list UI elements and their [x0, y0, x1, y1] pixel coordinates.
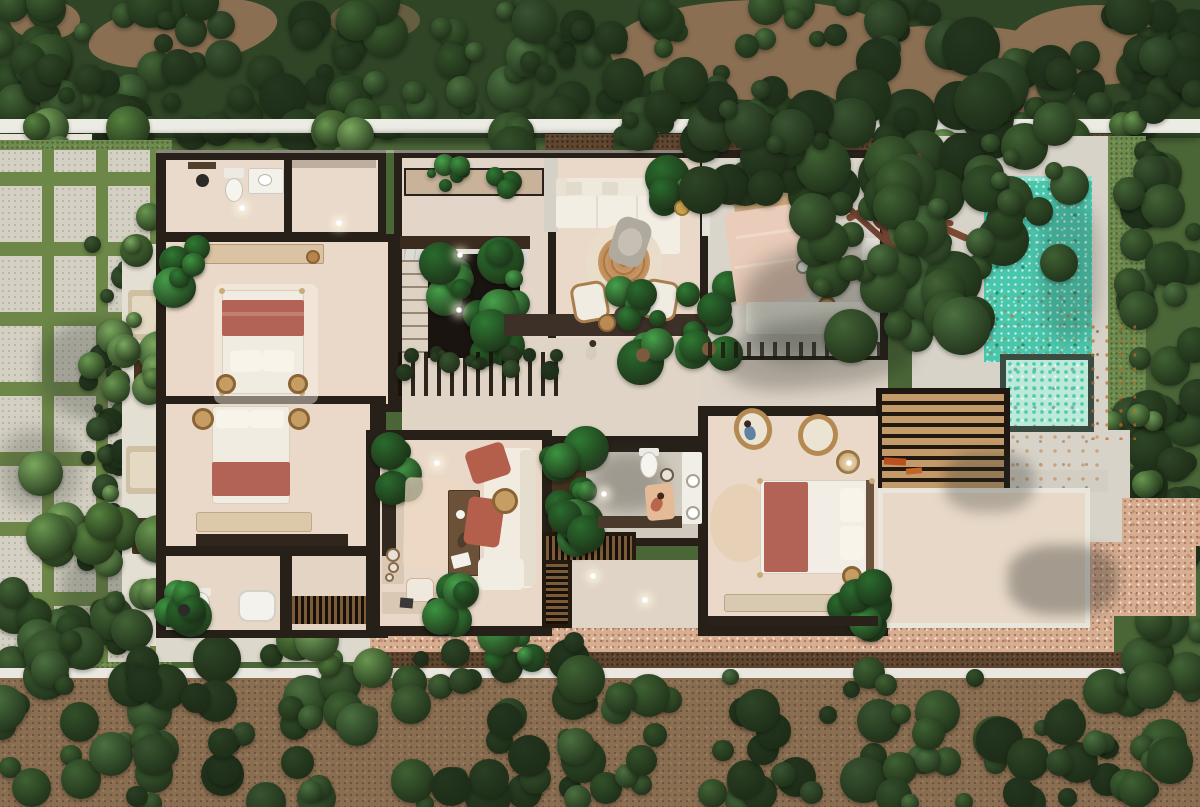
tree-canopy-blob [1025, 197, 1053, 225]
tree-canopy-blob [1033, 102, 1076, 145]
headboard-edge [866, 480, 874, 574]
top-canopy-blob [748, 0, 783, 25]
path-shrub [470, 632, 540, 668]
hedge-blob [86, 417, 110, 441]
sunken-garden-plants-blob [505, 270, 523, 288]
bed-knob [757, 478, 763, 484]
tree-canopy-blob [997, 189, 1023, 215]
bottom-canopy-blob [126, 786, 148, 807]
bottom-canopy-blob [605, 682, 637, 714]
tree-canopy-blob [966, 228, 995, 257]
gravel-patch [1122, 498, 1200, 546]
aerial-villa-render [0, 0, 1200, 807]
bottom-canopy-blob [722, 669, 739, 686]
bottom-canopy-blob [193, 635, 241, 683]
top-canopy-blob [512, 0, 558, 44]
courtyard-plants [544, 444, 592, 540]
top-canopy-blob [571, 20, 590, 39]
stone-basin [660, 468, 674, 482]
pillow [229, 349, 262, 373]
east-canopy-blob [1145, 242, 1189, 286]
rattan-disc [192, 408, 214, 430]
bottom-canopy-blob [736, 689, 779, 732]
tree-canopy-blob [1040, 244, 1078, 282]
bottom-canopy-blob [336, 703, 379, 746]
tree-canopy-blob [991, 172, 1008, 189]
louver-plants-blob [550, 349, 564, 363]
bottom-canopy-blob [1058, 788, 1077, 807]
wall-plate [388, 562, 399, 573]
bottom-canopy-blob [626, 745, 657, 776]
wicker-hat [492, 488, 518, 514]
bottom-canopy-blob [912, 717, 945, 750]
rattan-pouf [216, 374, 236, 394]
garden-palm-blob [18, 451, 63, 496]
bottom-canopy-blob [1083, 730, 1108, 755]
big-tree-canopy-blob [884, 311, 912, 339]
lamp-glow [845, 459, 853, 467]
bottom-canopy-blob [800, 781, 823, 804]
path-shrub-blob [517, 647, 534, 664]
bottom-canopy-blob [955, 793, 973, 807]
hedge-blob [81, 451, 95, 465]
louver-plants [398, 348, 564, 374]
louver-plants-blob [541, 361, 559, 379]
tree-canopy-blob [981, 134, 999, 152]
sunken-garden-plants-blob [451, 279, 471, 299]
top-canopy-blob [36, 54, 67, 85]
slat-floor-v [546, 564, 568, 624]
tray [306, 250, 320, 264]
sofa-seam [596, 196, 598, 228]
shelf [188, 162, 216, 169]
sink-bowl [258, 174, 272, 186]
ceiling-spotlight [589, 572, 597, 580]
east-canopy-blob [1141, 184, 1185, 228]
top-canopy-blob [161, 49, 196, 84]
console [196, 534, 348, 546]
ceiling-spotlight [641, 596, 649, 604]
closet-rail [292, 160, 376, 168]
pool-sunshelf [1006, 360, 1088, 426]
garden-palm-blob [124, 236, 142, 254]
planter-plants-blob [439, 179, 452, 192]
ceiling-spotlight [335, 219, 343, 227]
bed1-terracotta-blanket [222, 300, 304, 336]
scene-layer [0, 0, 1200, 807]
potted-plant-tall-blob [626, 279, 657, 310]
bottom-canopy-blob [771, 762, 796, 787]
stool [178, 604, 190, 616]
toilet [225, 178, 243, 202]
bottom-canopy-blob [819, 706, 837, 724]
pillow [840, 526, 864, 560]
garden-spotlight [455, 306, 463, 314]
bottom-canopy-blob [60, 630, 83, 653]
big-tree-canopy-blob [894, 107, 918, 131]
bed-knob [299, 288, 305, 294]
top-canopy-blob [74, 23, 92, 41]
tree-canopy [976, 116, 1072, 266]
sofa-pillow [566, 181, 583, 195]
tree-canopy-blob [1003, 149, 1020, 166]
bottom-canopy-blob [208, 728, 238, 758]
top-canopy-blob [162, 93, 181, 112]
east-canopy-blob [1182, 80, 1200, 105]
top-canopy-blob [205, 40, 242, 77]
top-canopy [340, 0, 530, 130]
plant-pot [636, 348, 650, 362]
coffee-side-table [598, 314, 616, 332]
bed-knob [757, 572, 763, 578]
east-canopy-blob [1113, 177, 1146, 210]
top-canopy-blob [58, 87, 75, 104]
bottom-canopy-blob [469, 759, 508, 798]
big-tree-canopy-blob [838, 255, 864, 281]
sunken-garden-plants-blob [419, 242, 462, 285]
bottom-canopy-blob [1147, 737, 1194, 784]
sink-bowl [686, 474, 700, 488]
garden-palm-blob [115, 337, 139, 361]
sofa-pillow [602, 182, 619, 196]
bottom-canopy-blob [12, 768, 51, 807]
garden-palm-blob [126, 312, 142, 328]
potted-plant [434, 588, 466, 624]
garden-palm-blob [78, 352, 105, 379]
tree-canopy-blob [622, 112, 639, 129]
bottom-canopy-blob [55, 676, 74, 695]
person-body [585, 345, 598, 361]
east-canopy-blob [1138, 93, 1169, 124]
person-body [743, 425, 757, 441]
tree-canopy-blob [1045, 162, 1063, 180]
blanket-fold [222, 312, 304, 316]
wall-cap-highlight [156, 150, 714, 153]
big-tree-canopy-blob [867, 244, 899, 276]
bottom-canopy-blob [127, 667, 162, 702]
bed-knob [869, 478, 875, 484]
bottom-canopy-blob [891, 704, 911, 724]
top-canopy-blob [291, 20, 321, 50]
garden-shrub-blob [105, 594, 123, 612]
bottom-canopy-blob [487, 703, 522, 738]
master-terracotta-blanket [764, 482, 808, 572]
potted-plant-tall-blob [617, 306, 642, 331]
planter-plants-blob [497, 179, 517, 199]
east-canopy-blob [1163, 282, 1188, 307]
south-deck [572, 560, 708, 628]
bottom-canopy-blob [557, 655, 605, 703]
bottom-canopy-blob [60, 702, 99, 741]
shower-slat-floor [292, 596, 366, 624]
louver-plants-blob [439, 352, 460, 373]
potted-plant-tall-blob [697, 292, 732, 327]
pillow [840, 488, 864, 522]
toilet [640, 452, 658, 478]
bathtub [238, 590, 276, 622]
bottom-canopy-blob [0, 685, 26, 731]
bottom-canopy-blob [1007, 738, 1050, 781]
bottom-canopy-blob [449, 668, 476, 695]
pillow [261, 349, 294, 373]
potted-plant-tall-blob [649, 310, 667, 328]
path-palm-blob [353, 648, 393, 688]
rattan-pouf [288, 374, 308, 394]
potted-plant-blob [182, 253, 205, 276]
tree-canopy-blob [812, 133, 829, 150]
top-canopy-blob [402, 81, 426, 105]
potted-plant-blob [856, 569, 893, 606]
potted-plant-tall-blob [676, 282, 700, 306]
chaise [478, 558, 524, 590]
bottom-canopy-blob [915, 747, 941, 773]
fallen-leaves [1086, 320, 1136, 440]
toilet-tank [224, 168, 244, 178]
louver-plants-blob [404, 348, 419, 363]
bottom-canopy-blob [875, 674, 897, 696]
garden-palm [40, 470, 160, 600]
bench [724, 594, 836, 612]
bottom-canopy-blob [1119, 771, 1156, 807]
top-canopy-blob [363, 71, 387, 95]
bench [196, 512, 312, 532]
top-canopy-blob [536, 64, 556, 84]
potted-plant-blob [371, 432, 409, 470]
tree-canopy-blob [644, 90, 681, 127]
top-canopy-blob [431, 17, 452, 38]
courtyard-plants-blob [544, 443, 579, 478]
planter-plants-blob [427, 169, 436, 178]
deck-shadow [1008, 545, 1118, 615]
pillow [216, 410, 250, 428]
bottom-canopy-blob [431, 767, 471, 807]
tree-canopy [608, 64, 778, 144]
pillow [250, 410, 284, 428]
coffee-cup [456, 510, 465, 519]
top-canopy-blob [1045, 58, 1076, 89]
bottom-canopy-blob [246, 782, 286, 807]
garden-palm-blob [85, 502, 123, 540]
tree-canopy-blob [679, 166, 726, 213]
big-tree-canopy [800, 176, 940, 296]
east-canopy-blob [1185, 223, 1200, 242]
bottom-canopy-blob [564, 785, 591, 807]
bottom-canopy-blob [727, 760, 765, 798]
bottom-canopy-blob [1044, 703, 1086, 745]
garden-palm-blob [102, 374, 131, 403]
ceiling-spotlight [600, 490, 608, 498]
planter-plants [404, 164, 544, 190]
potted-plant [164, 244, 208, 296]
planter-plants-blob [450, 156, 470, 176]
bed-knob [219, 288, 225, 294]
bottom-canopy-blob [299, 780, 322, 803]
person-head [589, 339, 597, 347]
bottom-canopy-blob [643, 723, 667, 747]
bottom-canopy-blob [133, 734, 174, 775]
top-canopy-blob [594, 21, 628, 55]
ceiling-spotlight [433, 459, 441, 467]
wall-plate [386, 548, 400, 562]
garden-shrub-blob [0, 577, 29, 609]
bottom-canopy-blob [89, 732, 134, 777]
top-canopy-blob [735, 34, 760, 59]
rattan-disc [288, 408, 310, 430]
bottom-canopy-blob [298, 705, 323, 730]
bottom-canopy-blob [1003, 777, 1035, 807]
grill-ember [884, 457, 906, 465]
palm-cluster-blob [337, 117, 374, 154]
hedge-blob [84, 236, 101, 253]
louver-plants-blob [523, 348, 536, 361]
wall-plate [385, 573, 394, 582]
bottom-canopy-blob [441, 639, 469, 667]
deck-shadow [944, 452, 1034, 512]
top-canopy-blob [465, 42, 484, 61]
big-tree-canopy-blob [933, 297, 991, 355]
sunken-garden-plants [426, 248, 522, 354]
garden-palm-blob [102, 485, 119, 502]
top-canopy-blob [336, 0, 377, 41]
stool [196, 174, 209, 187]
top-canopy-blob [835, 0, 860, 16]
top-canopy-blob [654, 39, 673, 58]
big-tree-canopy-blob [813, 278, 832, 297]
threshold [708, 616, 878, 626]
top-canopy-blob [0, 0, 29, 22]
ceiling-spotlight [238, 204, 246, 212]
top-canopy-blob [157, 11, 175, 29]
sink-bowl [686, 506, 700, 520]
laptop [400, 597, 414, 608]
east-canopy-blob [1127, 662, 1174, 709]
big-tree-canopy-blob [894, 220, 929, 255]
east-palm-blob [1132, 471, 1159, 498]
bottom-canopy-blob [966, 669, 984, 687]
bottom-canopy-blob [413, 651, 429, 667]
ceiling-spotlight [456, 251, 464, 259]
bed2-terracotta-blanket [212, 462, 290, 496]
bottom-canopy-blob [901, 794, 920, 807]
